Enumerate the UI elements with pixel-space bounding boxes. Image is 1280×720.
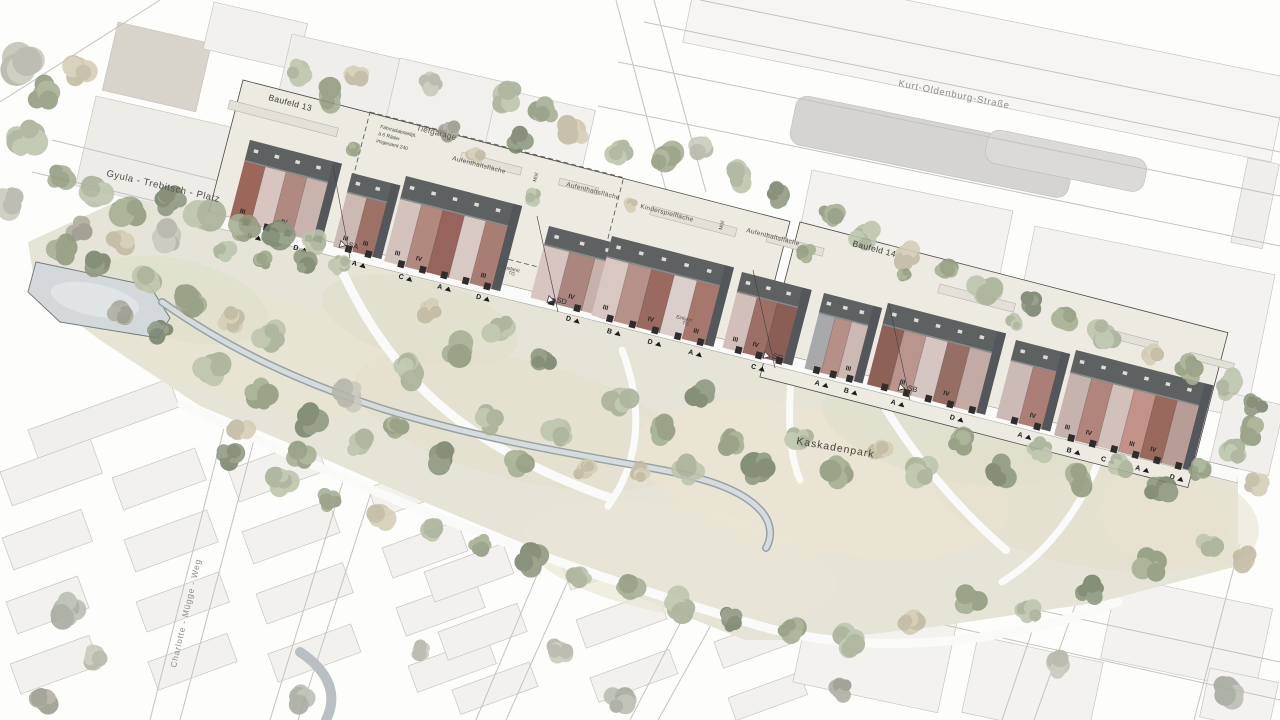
tree: [1144, 476, 1178, 502]
tree: [318, 77, 341, 114]
site-plan-canvas: IIIIVBDIIIIIIAIIIIVIIICADIVDIIIIVIIIBDAI…: [0, 0, 1280, 720]
tree: [226, 419, 256, 440]
tree: [525, 188, 541, 207]
site-plan: IIIIVBDIIIIIIAIIIIVIIICADIVDIIIIVIIIBDAI…: [0, 0, 1280, 720]
